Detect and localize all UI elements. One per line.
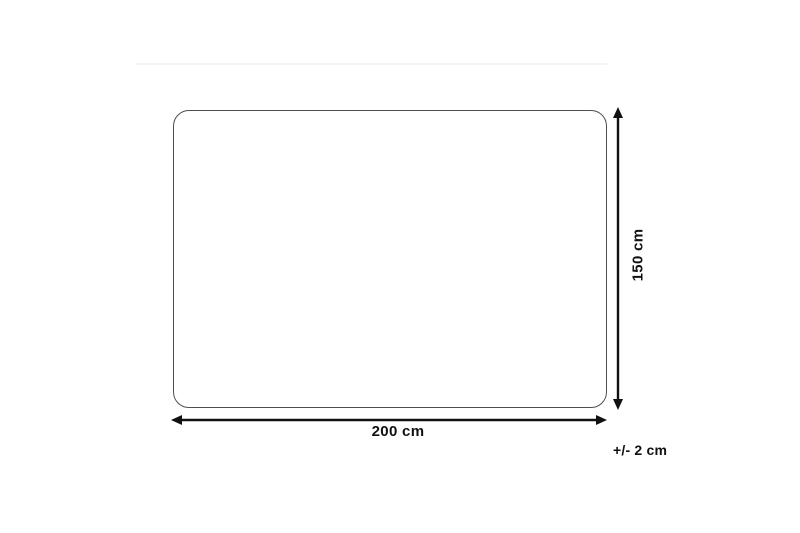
product-outline-rectangle [173, 110, 607, 408]
arrowhead-down-icon [613, 399, 623, 410]
dimension-diagram: 150 cm 200 cm +/- 2 cm [0, 0, 800, 533]
arrowhead-right-icon [596, 415, 607, 425]
tolerance-label: +/- 2 cm [613, 442, 667, 458]
top-divider-line [135, 63, 607, 65]
height-dimension-label: 150 cm [630, 229, 647, 282]
arrowhead-up-icon [613, 107, 623, 118]
width-dimension-label: 200 cm [372, 423, 425, 440]
height-dimension-arrow [611, 107, 625, 410]
arrowhead-left-icon [171, 415, 182, 425]
